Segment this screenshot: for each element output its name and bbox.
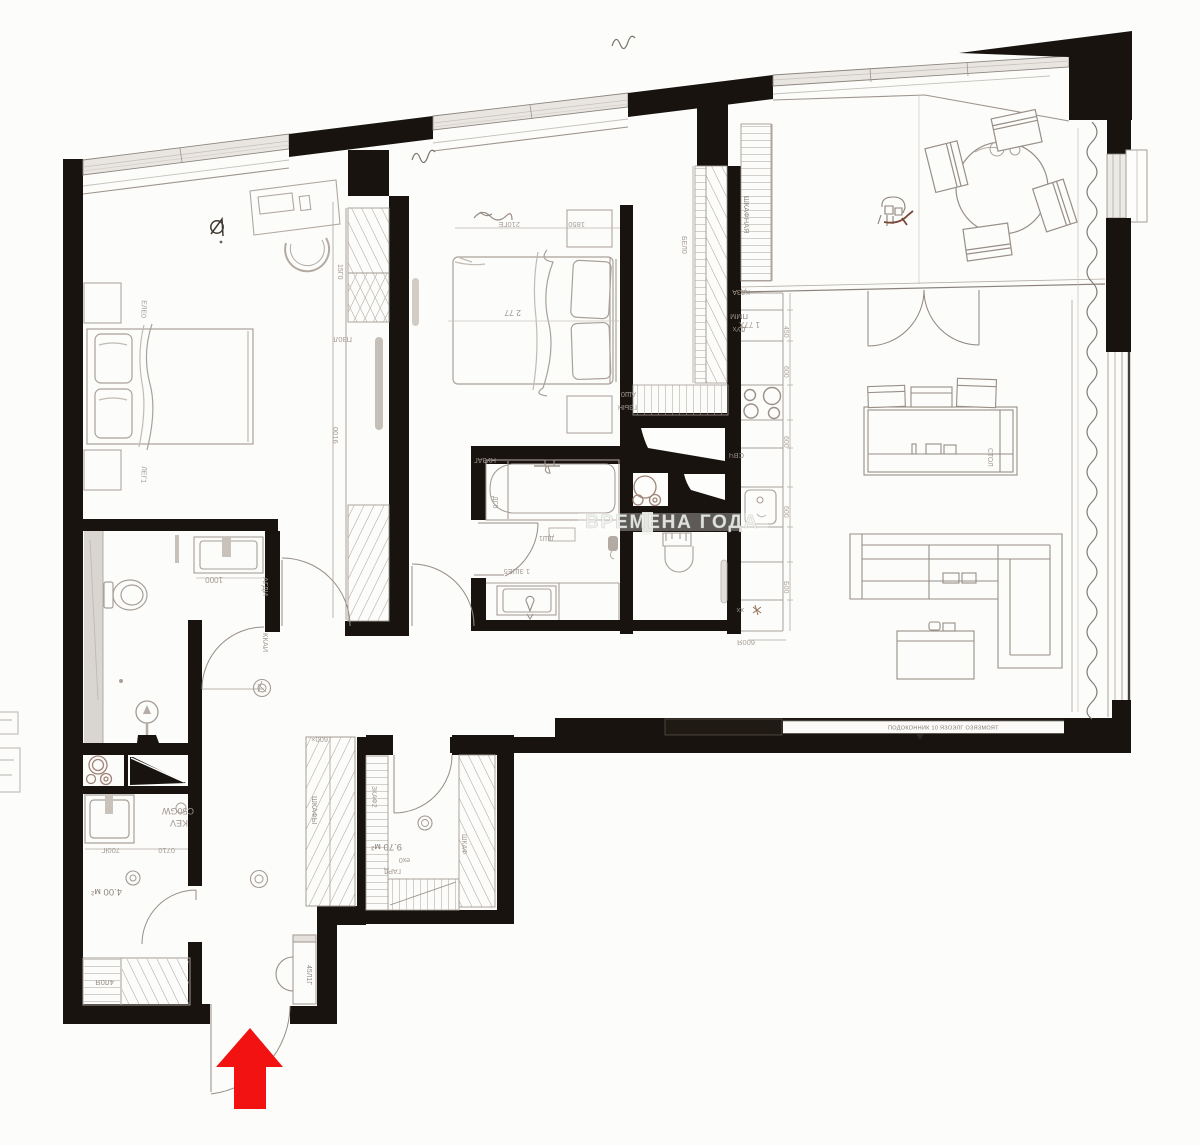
svg-text:ех0: ех0 (399, 856, 410, 863)
svg-text:ГАРД: ГАРД (384, 867, 401, 874)
svg-text:ЛЕГ1: ЛЕГ1 (139, 466, 147, 483)
svg-text:0710: 0710 (158, 846, 175, 855)
svg-text:1 3ШЕ5: 1 3ШЕ5 (504, 567, 530, 576)
svg-text:АГДИ: АГДИ (261, 577, 270, 596)
svg-text:ДГ0: ДГ0 (491, 496, 498, 509)
svg-text:9.70 м²: 9.70 м² (371, 841, 402, 852)
svg-text:700ƗГ: 700ƗГ (101, 846, 120, 855)
svg-text:4.00 м²: 4.00 м² (91, 886, 122, 897)
svg-text:ДУх: ДУх (732, 325, 746, 334)
svg-text:СВЧ: СВЧ (729, 451, 744, 460)
svg-text:СТОЛ: СТОЛ (986, 448, 993, 467)
svg-text:1850: 1850 (568, 220, 585, 229)
svg-text:0016: 0016 (331, 427, 340, 444)
svg-text:4Л0Я: 4Л0Я (95, 978, 114, 987)
svg-text:15Г0: 15Г0 (336, 264, 343, 280)
svg-text:АШ0: АШ0 (621, 390, 636, 397)
svg-text:ГЗЫН: ГЗЫН (618, 403, 637, 410)
svg-text:600: 600 (782, 436, 789, 448)
svg-text:600: 600 (782, 366, 789, 378)
svg-text:210ГЕ: 210ГЕ (498, 220, 520, 229)
svg-text:БЕЛ0: БЕЛ0 (680, 236, 687, 254)
svg-text:ШКАФЫ: ШКАФЫ (310, 796, 319, 825)
svg-text:ЕЛЕ0: ЕЛЕ0 (139, 300, 147, 318)
svg-text:45Л1Г: 45Л1Г (305, 965, 312, 985)
svg-text:ВРЕМЕНА ГОДА: ВРЕМЕНА ГОДА (585, 512, 759, 533)
svg-text:1000: 1000 (205, 575, 223, 584)
svg-text:ПММ: ПММ (730, 312, 748, 321)
svg-text:450: 450 (782, 326, 789, 338)
svg-text:ККАИ: ККАИ (261, 633, 270, 652)
svg-text:НУЗАГ: НУЗАГ (474, 456, 496, 463)
svg-text:хх: хх (736, 606, 744, 615)
svg-text:П30Л: П30Л (333, 335, 352, 344)
svg-text:ДШ1: ДШ1 (539, 534, 554, 541)
svg-text:ШКАФ: ШКАФ (460, 834, 467, 854)
svg-text:Б00: Б00 (782, 581, 789, 593)
svg-text:ШКАФНАЯ: ШКАФНАЯ (742, 196, 751, 234)
svg-text:600: 600 (782, 506, 789, 518)
svg-text:ПОДОКОННИК 10 ЯЗОЭЛГ ОЗЯЗМОЯТ: ПОДОКОННИК 10 ЯЗОЭЛГ ОЗЯЗМОЯТ (888, 726, 999, 732)
svg-text:KEV: KEV (170, 818, 188, 828)
svg-text:2 77: 2 77 (504, 308, 521, 318)
svg-text:600×: 600× (311, 735, 328, 744)
svg-text:C50GW: C50GW (161, 806, 194, 816)
svg-text:3КАФ2: 3КАФ2 (370, 786, 377, 808)
svg-text:600Я: 600Я (737, 638, 755, 647)
